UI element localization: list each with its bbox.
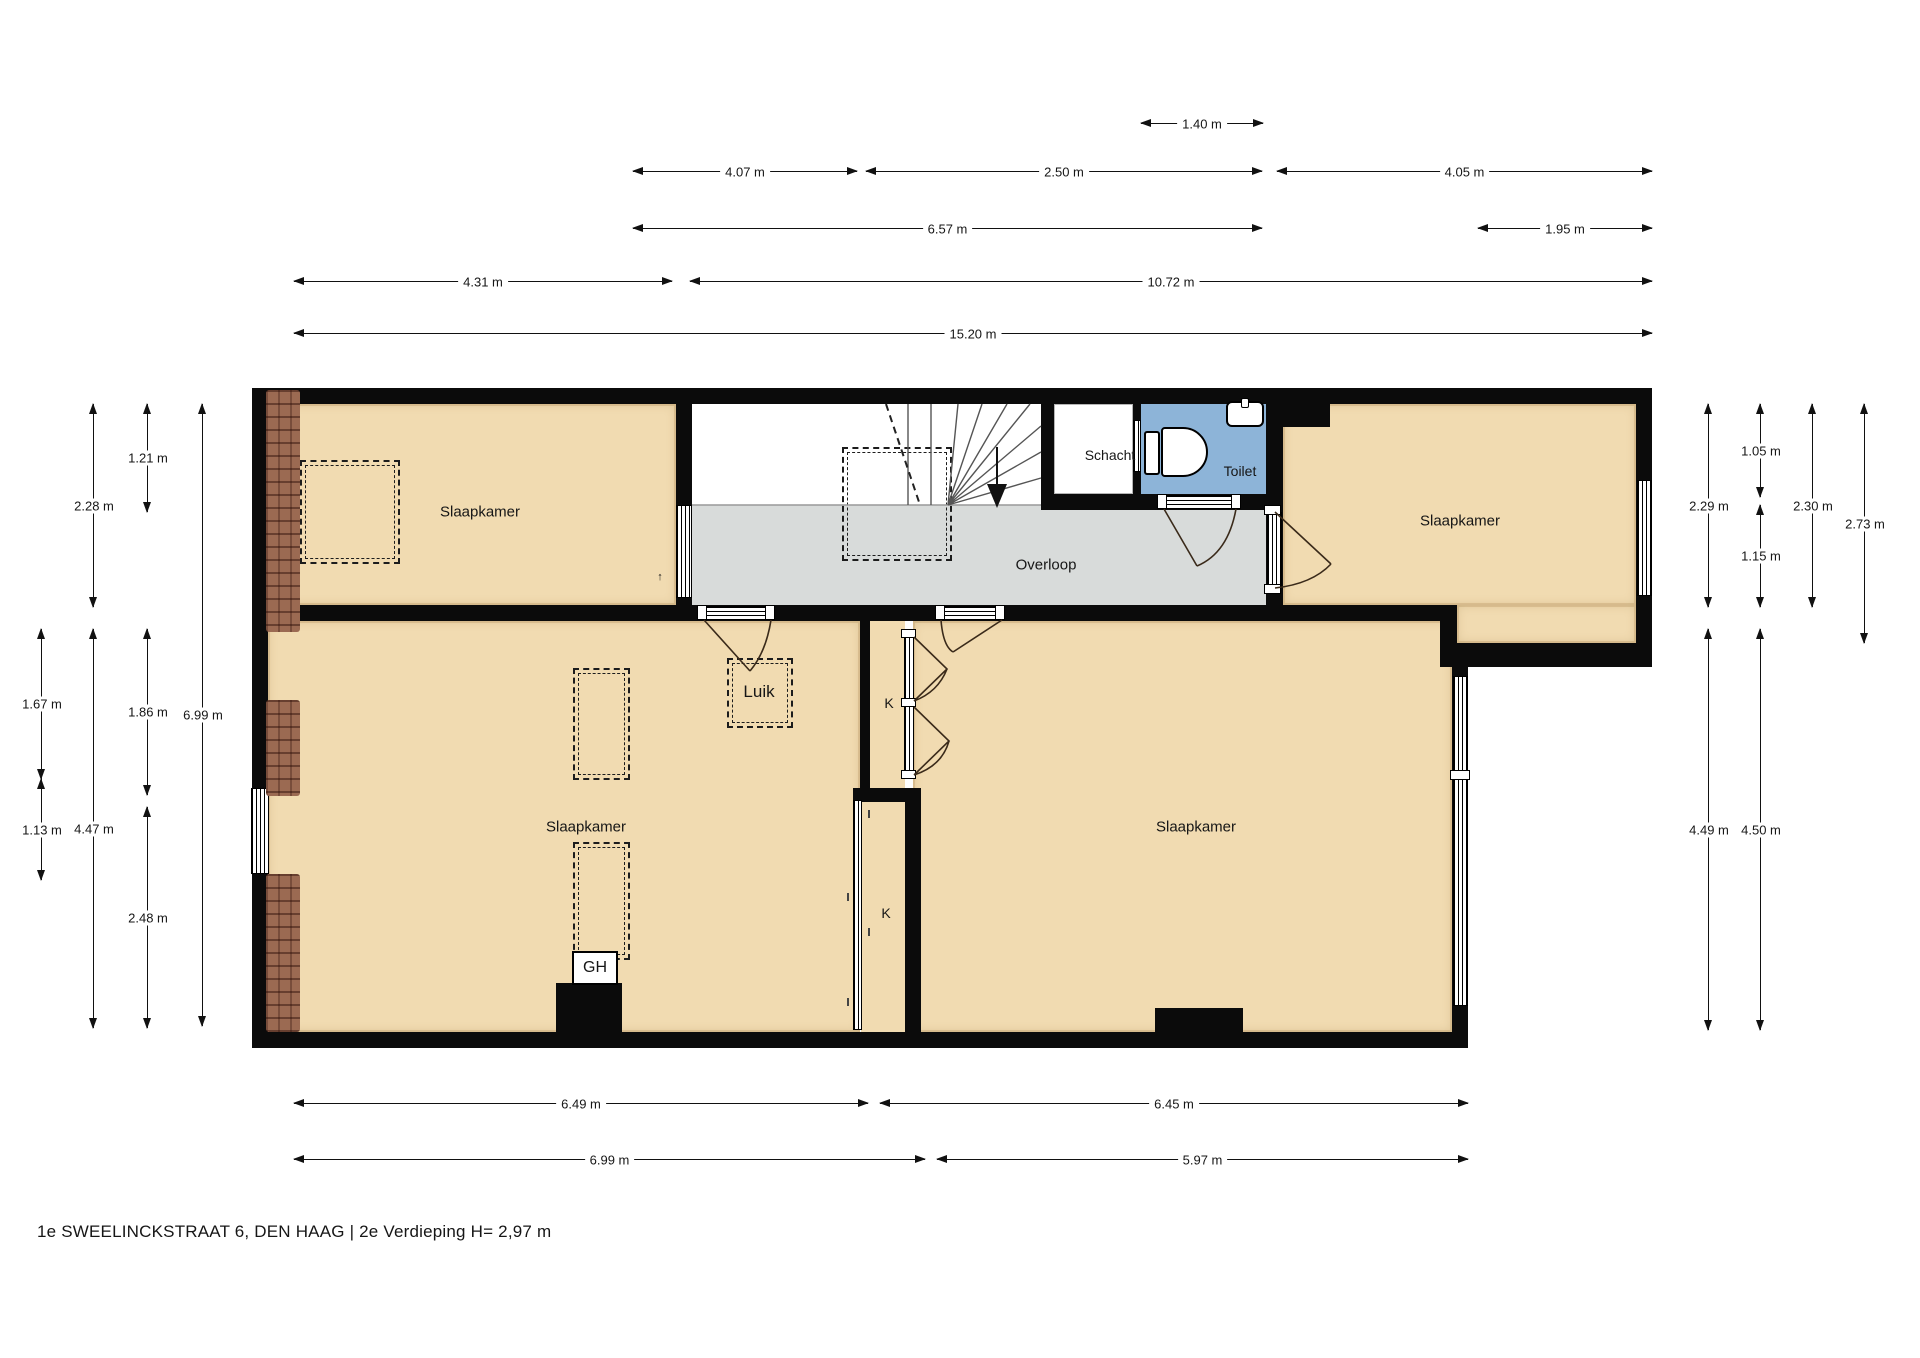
dimension-label: 15.20 m bbox=[945, 327, 1002, 342]
dimension-label: 4.05 m bbox=[1440, 165, 1490, 180]
dimension-label: 2.50 m bbox=[1039, 165, 1089, 180]
dimension-label: 6.45 m bbox=[1149, 1097, 1199, 1112]
geiser-block bbox=[556, 983, 622, 1032]
dimension-line: 4.47 m bbox=[93, 629, 94, 1028]
brick-chimney-strip bbox=[266, 874, 300, 1032]
tick-mark bbox=[847, 893, 849, 901]
dimension-label: 1.05 m bbox=[1736, 443, 1786, 458]
dimension-label: 2.30 m bbox=[1788, 498, 1838, 513]
label-closet-upper: K bbox=[884, 695, 893, 711]
door-post bbox=[697, 605, 707, 620]
label-luik: Luik bbox=[743, 682, 774, 702]
label-closet-lower: K bbox=[881, 905, 890, 921]
dimension-line: 6.45 m bbox=[880, 1103, 1468, 1104]
dimension-line: 1.05 m bbox=[1760, 404, 1761, 497]
room-overloop bbox=[692, 505, 1266, 605]
dimension-line: 10.72 m bbox=[690, 281, 1652, 282]
arrow-mark: ↑ bbox=[657, 571, 663, 583]
dimension-line: 1.40 m bbox=[1141, 123, 1263, 124]
wall-top bbox=[252, 388, 1652, 404]
door-post bbox=[935, 605, 945, 620]
door-opening-bottom-left-room bbox=[702, 606, 772, 620]
dimension-line: 4.07 m bbox=[633, 171, 857, 172]
sink-faucet bbox=[1241, 398, 1249, 408]
label-schacht: Schacht bbox=[1085, 447, 1136, 463]
label-slaapkamer-top-right: Slaapkamer bbox=[1420, 513, 1500, 530]
dashed-dormer-1 bbox=[573, 668, 630, 780]
dimension-label: 1.13 m bbox=[17, 822, 67, 837]
dimension-line: 6.49 m bbox=[294, 1103, 868, 1104]
dimension-label: 2.48 m bbox=[123, 910, 173, 925]
door-opening-top-right-room bbox=[1267, 512, 1282, 588]
vent-schacht bbox=[1133, 420, 1141, 472]
door-post bbox=[995, 605, 1005, 620]
door-post bbox=[765, 605, 775, 620]
dimension-line: 4.05 m bbox=[1277, 171, 1652, 172]
wall-stairwell-left-upper bbox=[676, 388, 692, 505]
label-slaapkamer-bottom-left: Slaapkamer bbox=[546, 819, 626, 836]
closet-hinge-post bbox=[901, 698, 916, 707]
dimension-label: 6.99 m bbox=[585, 1153, 635, 1168]
dimension-line: 2.73 m bbox=[1864, 404, 1865, 643]
window-top-right-room bbox=[1637, 480, 1652, 596]
dimension-line: 1.15 m bbox=[1760, 505, 1761, 607]
dimension-label: 6.99 m bbox=[178, 708, 228, 723]
dimension-line: 1.67 m bbox=[41, 629, 42, 779]
dimension-label: 2.29 m bbox=[1684, 498, 1734, 513]
dimension-label: 4.50 m bbox=[1736, 822, 1786, 837]
dimension-line: 1.13 m bbox=[41, 779, 42, 880]
brick-chimney-strip bbox=[266, 390, 300, 632]
dimension-line: 2.28 m bbox=[93, 404, 94, 607]
dimension-line: 1.86 m bbox=[147, 629, 148, 795]
wall-middle-horizontal bbox=[252, 605, 1440, 621]
wall-closet-upper-left bbox=[860, 621, 870, 790]
floorplan-canvas: Slaapkamer Slaapkamer Slaapkamer Slaapka… bbox=[0, 0, 1920, 1358]
dimension-label: 1.95 m bbox=[1540, 222, 1590, 237]
wall-stairwell-left-lower bbox=[676, 598, 692, 621]
dimension-label: 6.49 m bbox=[556, 1097, 606, 1112]
label-geiser: GH bbox=[583, 959, 607, 977]
dimension-label: 1.15 m bbox=[1736, 549, 1786, 564]
door-post bbox=[1264, 584, 1281, 594]
door-opening-toilet bbox=[1162, 495, 1238, 509]
partition-glazed-overloop bbox=[676, 505, 692, 598]
dashed-dormer-2 bbox=[573, 842, 630, 960]
dimension-line: 4.31 m bbox=[294, 281, 672, 282]
dimension-line: 1.95 m bbox=[1478, 228, 1652, 229]
tick-mark bbox=[847, 998, 849, 1006]
wall-top-right-bottom bbox=[1440, 643, 1652, 667]
dimension-line: 5.97 m bbox=[937, 1159, 1468, 1160]
dimension-line: 2.29 m bbox=[1708, 404, 1709, 607]
dimension-label: 5.97 m bbox=[1178, 1153, 1228, 1168]
dimension-line: 2.50 m bbox=[866, 171, 1262, 172]
dimension-label: 1.21 m bbox=[123, 451, 173, 466]
dimension-line: 6.99 m bbox=[202, 404, 203, 1026]
dimension-line: 6.57 m bbox=[633, 228, 1262, 229]
closet-panel-lower bbox=[853, 800, 862, 1030]
wall-bottom bbox=[252, 1032, 1468, 1048]
door-post bbox=[1231, 494, 1241, 509]
tick-mark bbox=[868, 810, 870, 818]
dimension-label: 6.57 m bbox=[923, 222, 973, 237]
wc-tank bbox=[1144, 431, 1160, 475]
dimension-label: 1.40 m bbox=[1177, 117, 1227, 132]
closet-hinge-post bbox=[901, 629, 916, 638]
tick-mark bbox=[868, 928, 870, 936]
dimension-label: 10.72 m bbox=[1143, 275, 1200, 290]
dashed-stair-opening bbox=[842, 447, 952, 561]
page-title: 1e SWEELINCKSTRAAT 6, DEN HAAG | 2e Verd… bbox=[37, 1222, 551, 1242]
dimension-label: 4.31 m bbox=[458, 275, 508, 290]
label-slaapkamer-bottom-right: Slaapkamer bbox=[1156, 819, 1236, 836]
window-left-wall bbox=[251, 788, 269, 874]
label-overloop: Overloop bbox=[1016, 557, 1077, 574]
wall-closet-lower-right bbox=[905, 800, 921, 1032]
room-slaapkamer-top-right bbox=[1283, 404, 1636, 605]
dimension-label: 4.49 m bbox=[1684, 822, 1734, 837]
window-divider bbox=[1450, 770, 1470, 780]
niche-block-bottom-right bbox=[1155, 1008, 1243, 1034]
dimension-line: 4.50 m bbox=[1760, 629, 1761, 1030]
dimension-line: 2.30 m bbox=[1812, 404, 1813, 607]
dimension-label: 1.86 m bbox=[123, 705, 173, 720]
dimension-line: 4.49 m bbox=[1708, 629, 1709, 1030]
dimension-label: 2.28 m bbox=[69, 498, 119, 513]
dimension-line: 1.21 m bbox=[147, 404, 148, 512]
dashed-chimney-breast bbox=[300, 460, 400, 564]
dimension-line: 15.20 m bbox=[294, 333, 1652, 334]
brick-chimney-strip bbox=[266, 700, 300, 796]
door-post bbox=[1157, 494, 1167, 509]
wall-schacht-left bbox=[1041, 388, 1054, 510]
door-opening-bottom-right-room bbox=[940, 606, 1002, 620]
dimension-line: 2.48 m bbox=[147, 807, 148, 1028]
door-post bbox=[1264, 505, 1281, 515]
dimension-line: 6.99 m bbox=[294, 1159, 925, 1160]
dimension-label: 2.73 m bbox=[1840, 516, 1890, 531]
wall-toilet-corner-block bbox=[1266, 388, 1330, 427]
label-toilet: Toilet bbox=[1224, 463, 1257, 479]
label-slaapkamer-top-left: Slaapkamer bbox=[440, 504, 520, 521]
dimension-label: 4.47 m bbox=[69, 821, 119, 836]
room-slaapkamer-top-right-extension bbox=[1457, 605, 1636, 643]
dimension-label: 4.07 m bbox=[720, 165, 770, 180]
dimension-label: 1.67 m bbox=[17, 697, 67, 712]
window-bottom-right-room bbox=[1453, 676, 1468, 1006]
closet-hinge-post bbox=[901, 770, 916, 779]
